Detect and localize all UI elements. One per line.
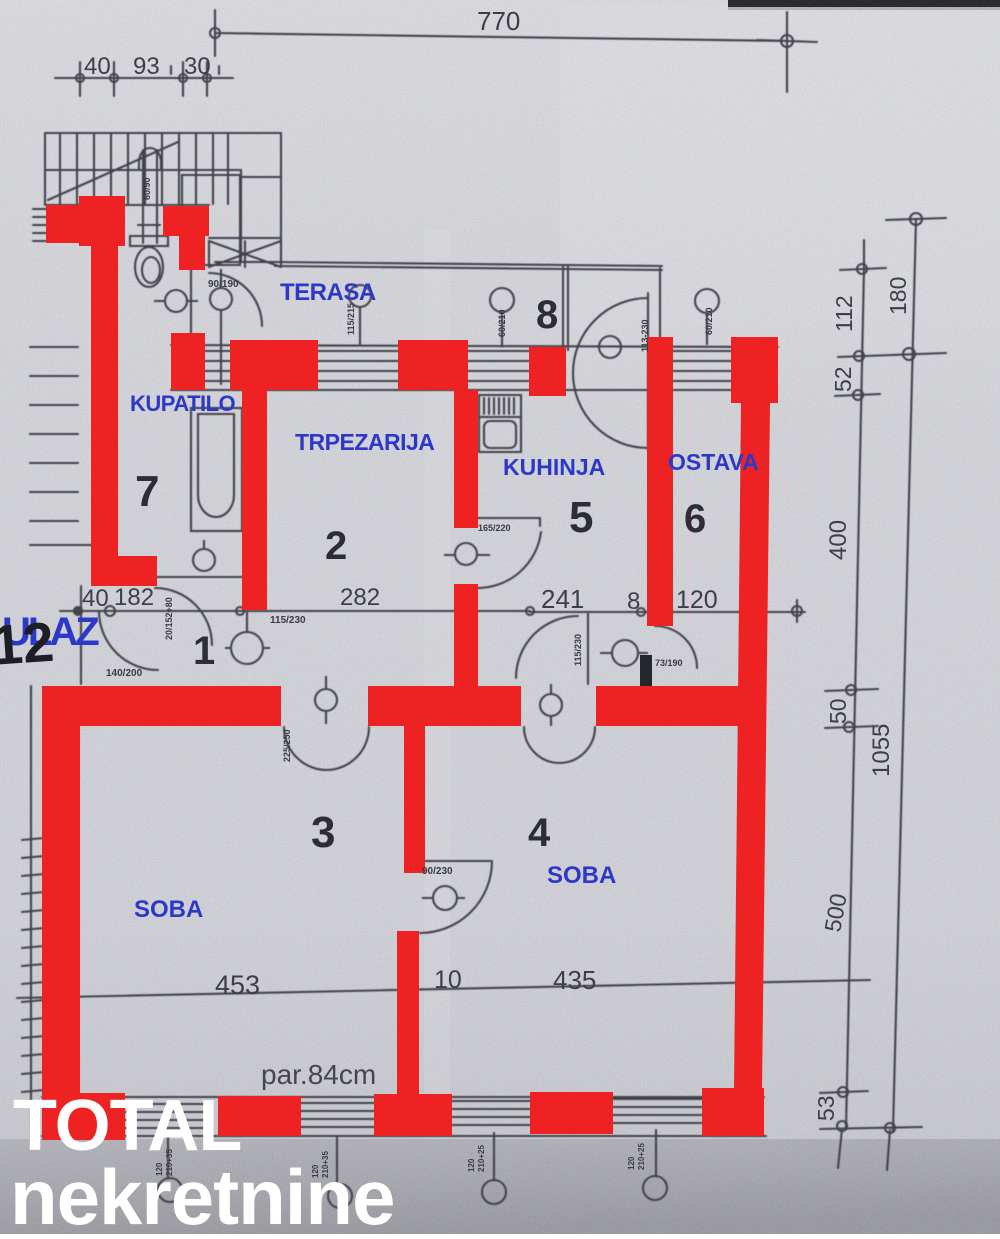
- svg-text:52: 52: [830, 366, 856, 392]
- svg-text:7: 7: [135, 467, 159, 516]
- svg-text:90/230: 90/230: [422, 866, 453, 877]
- svg-text:120: 120: [627, 1156, 636, 1170]
- svg-text:210+25: 210+25: [637, 1143, 646, 1170]
- svg-text:60/210: 60/210: [497, 309, 507, 337]
- svg-text:182: 182: [114, 584, 154, 611]
- svg-text:60/90: 60/90: [142, 177, 152, 200]
- svg-text:165/220: 165/220: [478, 523, 511, 533]
- svg-text:40: 40: [84, 53, 111, 80]
- svg-text:12: 12: [0, 610, 56, 677]
- svg-text:112: 112: [831, 295, 857, 332]
- svg-text:5: 5: [569, 493, 593, 542]
- svg-text:1055: 1055: [868, 724, 895, 777]
- svg-text:282: 282: [340, 584, 380, 611]
- svg-text:30: 30: [184, 53, 211, 80]
- svg-text:120: 120: [676, 586, 718, 614]
- svg-text:453: 453: [215, 970, 260, 1000]
- svg-text:225/250: 225/250: [282, 729, 292, 762]
- svg-text:4: 4: [528, 811, 551, 855]
- svg-text:40: 40: [82, 585, 109, 612]
- svg-text:OSTAVA: OSTAVA: [668, 449, 759, 475]
- svg-text:113-230: 113-230: [640, 319, 650, 352]
- svg-text:nekretnine: nekretnine: [10, 1153, 394, 1234]
- svg-text:TRPEZARIJA: TRPEZARIJA: [295, 429, 434, 455]
- svg-text:180: 180: [885, 277, 911, 315]
- svg-text:50: 50: [825, 698, 851, 724]
- svg-text:90/190: 90/190: [208, 279, 239, 290]
- svg-text:TERASA: TERASA: [280, 279, 376, 306]
- svg-text:115/215: 115/215: [346, 303, 356, 335]
- svg-text:400: 400: [825, 520, 852, 560]
- svg-text:120: 120: [467, 1158, 476, 1172]
- svg-text:2: 2: [325, 524, 347, 568]
- svg-text:1: 1: [193, 629, 215, 673]
- svg-text:SOBA: SOBA: [547, 862, 616, 889]
- svg-text:KUHINJA: KUHINJA: [503, 454, 605, 480]
- svg-text:93: 93: [133, 53, 160, 80]
- svg-text:20/152+80: 20/152+80: [164, 597, 174, 640]
- svg-text:140/200: 140/200: [106, 668, 143, 679]
- svg-text:770: 770: [477, 6, 520, 36]
- svg-text:60/210: 60/210: [704, 307, 714, 335]
- svg-text:210+25: 210+25: [477, 1145, 486, 1172]
- svg-text:115/230: 115/230: [270, 615, 306, 626]
- svg-text:73/190: 73/190: [655, 658, 683, 668]
- svg-text:3: 3: [311, 808, 335, 857]
- svg-text:par.84cm: par.84cm: [261, 1059, 376, 1090]
- svg-text:SOBA: SOBA: [134, 896, 203, 923]
- svg-text:KUPATILO: KUPATILO: [130, 391, 236, 416]
- svg-text:53: 53: [813, 1095, 839, 1121]
- svg-text:435: 435: [553, 965, 596, 995]
- svg-text:8: 8: [536, 293, 558, 337]
- svg-text:241: 241: [541, 584, 584, 614]
- svg-text:115/230: 115/230: [573, 634, 583, 666]
- svg-text:6: 6: [684, 497, 706, 541]
- svg-text:8: 8: [627, 588, 640, 615]
- svg-text:10: 10: [434, 966, 462, 994]
